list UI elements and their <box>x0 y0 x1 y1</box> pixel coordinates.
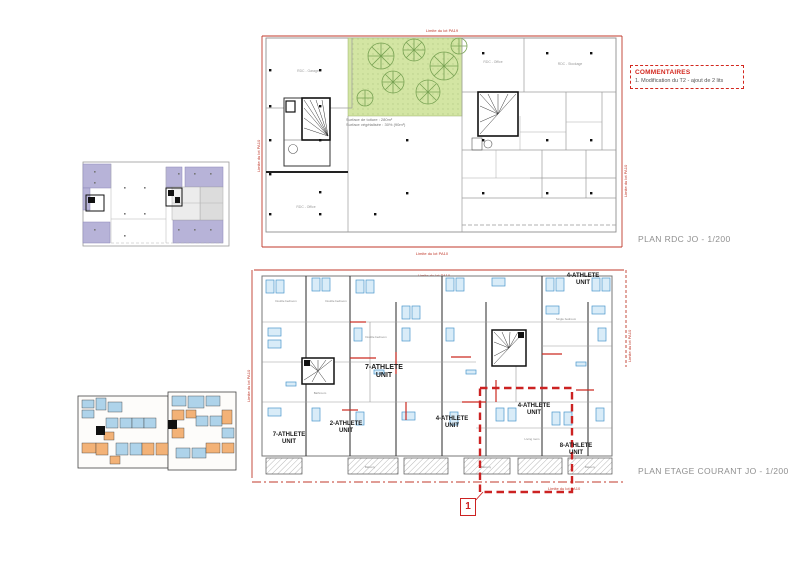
room-double-3: Double bedroom <box>365 335 387 339</box>
rdc-room-office-top: RDC - Office <box>483 60 502 64</box>
comments-item-1: 1. Modification du T2 - ajout de 2 lits <box>635 78 739 84</box>
comments-title: COMMENTAIRES <box>635 69 739 76</box>
revision-marker-1: 1 <box>460 498 476 516</box>
room-double-2: Double bedroom <box>325 299 347 303</box>
rdc-room-office-left: RDC - Office <box>296 205 315 209</box>
drawing-sheet: Limite du lot PA19 Limite du lot PA10 Li… <box>0 0 800 566</box>
rdc-limit-right: Limite du lot PA10 <box>623 164 628 197</box>
etage-stair-core-b <box>492 330 526 366</box>
key-plan-etage <box>76 388 240 484</box>
room-balcony-1: Balcony <box>365 465 376 469</box>
room-balcony-3: Balcony <box>585 465 596 469</box>
room-balcony-2: Balcony <box>481 465 492 469</box>
rdc-surface-annotation: Surface de toiture : 280m² Surface végét… <box>346 117 405 127</box>
key-rdc-gray-blocks <box>172 187 223 220</box>
etage-limit-bottom: Limite du lot PA10 <box>548 486 581 491</box>
rdc-room-garage: RDC - Garage <box>297 69 319 73</box>
plan-etage-drawing: Limite du lot PA19 Limite du lot PA10 Li… <box>246 262 636 516</box>
plan-rdc-drawing: Limite du lot PA19 Limite du lot PA10 Li… <box>256 22 628 260</box>
room-single: Single bedroom <box>556 317 577 321</box>
rdc-room-stockage: RDC - Stockage <box>558 62 583 66</box>
rdc-limit-left: Limite du lot PA10 <box>256 139 261 172</box>
etage-balconies <box>266 458 612 474</box>
etage-limit-left: Limite du lot PA10 <box>246 369 251 402</box>
key-plan-rdc <box>82 157 234 251</box>
rdc-limit-top: Limite du lot PA19 <box>426 28 459 33</box>
room-double-1: Double bedroom <box>275 299 297 303</box>
room-living: Living room <box>525 437 541 441</box>
rdc-limit-bottom: Limite du lot PA10 <box>416 251 449 256</box>
etage-stair-core-a <box>302 358 334 384</box>
rdc-garden <box>348 38 467 116</box>
caption-plan-rdc: PLAN RDC JO - 1/200 <box>638 234 731 244</box>
comments-box: COMMENTAIRES 1. Modification du T2 - ajo… <box>630 65 744 89</box>
caption-plan-etage: PLAN ETAGE COURANT JO - 1/200 <box>638 466 789 476</box>
rdc-stair-core-a <box>284 98 330 166</box>
room-bath: Bathroom <box>314 391 327 395</box>
etage-limit-right: Limite du lot PA10 <box>627 329 632 362</box>
